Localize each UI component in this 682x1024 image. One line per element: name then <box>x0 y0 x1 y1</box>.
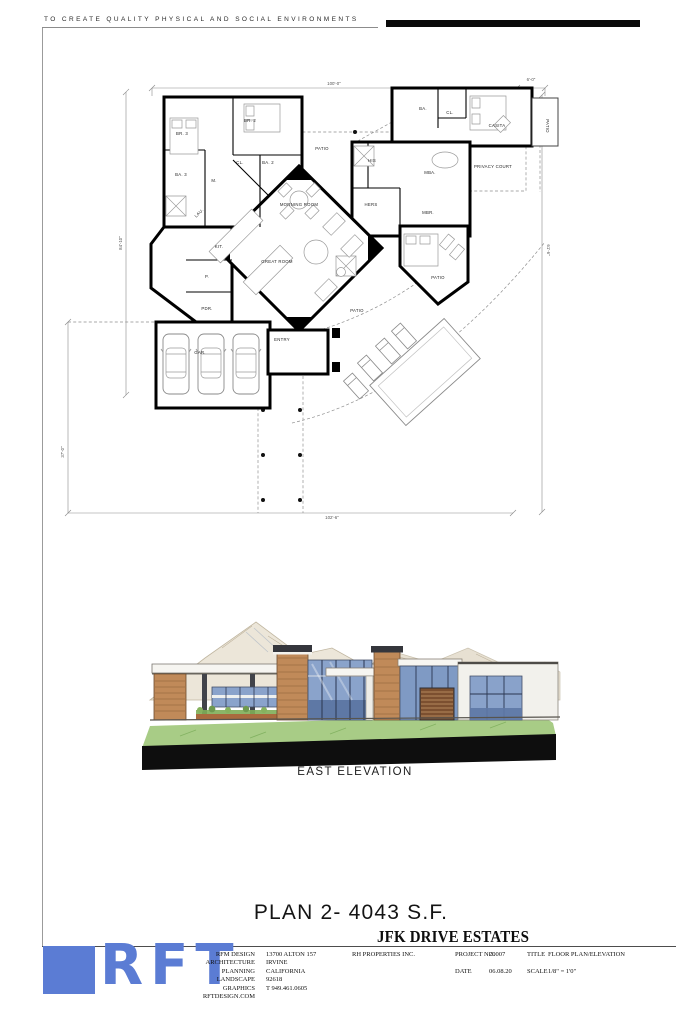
room-label-casita-ba: BA. <box>419 106 427 111</box>
project-no-value: 20007 <box>489 951 505 959</box>
room-label-morning-room: MORNING ROOM <box>280 202 318 207</box>
title-label: TITLE <box>527 951 545 959</box>
dim-bottom: 102'-6" <box>325 515 339 520</box>
room-label-entry: ENTRY <box>274 337 290 342</box>
title-value: FLOOR PLAN/ELEVATION <box>548 951 625 959</box>
room-label-m: M. <box>211 178 216 183</box>
room-label-mbr: MBR. <box>422 210 434 215</box>
dim-left-lower: 37'-0" <box>60 446 65 458</box>
east-elevation-rendering <box>142 622 560 770</box>
room-label-br3: BR. 3 <box>176 131 188 136</box>
firm-line: RFM DESIGN <box>158 951 255 959</box>
date-label: DATE <box>455 968 472 976</box>
floor-plan-and-elevation-drawing: 100'-0" 6'-0" 84'-10" 37'-0" 102'-6" 61'… <box>0 0 682 1024</box>
dim-top-right: 6'-0" <box>527 77 536 82</box>
firm-line: ARCHITECTURE <box>158 959 255 967</box>
firm-line: LANDSCAPE <box>158 976 255 984</box>
address-line: 13700 ALTON 157 <box>266 951 316 959</box>
firm-services-column: RFM DESIGN ARCHITECTURE PLANNING LANDSCA… <box>158 951 255 1001</box>
address-line: IRVINE <box>266 959 316 967</box>
date-value: 06.08.20 <box>489 968 512 976</box>
room-label-hers: HERS <box>365 202 378 207</box>
room-label-casita-cl: CL. <box>446 110 453 115</box>
room-label-gar: GAR. <box>194 350 206 355</box>
scale-label: SCALE <box>527 968 548 976</box>
room-label-ba2: BA. 2 <box>262 160 274 165</box>
firm-website: RFTDESIGN.COM <box>158 993 255 1001</box>
firm-address-column: 13700 ALTON 157 IRVINE CALIFORNIA 92618 … <box>266 951 316 993</box>
room-label-his: HIS <box>368 158 376 163</box>
project-name: JFK DRIVE ESTATES <box>377 927 529 947</box>
room-label-patio-top: PATIO <box>315 146 329 151</box>
firm-line: GRAPHICS <box>158 985 255 993</box>
room-label-privacy-court: PRIVACY COURT <box>474 164 512 169</box>
garage-cars <box>161 334 261 394</box>
scale-value: 1/8" = 1'0" <box>548 968 576 976</box>
room-label-patio-low: PATIO <box>350 308 364 313</box>
address-phone: T 949.461.0605 <box>266 985 316 993</box>
plan-title: PLAN 2- 4043 S.F. <box>0 901 682 925</box>
firm-line: PLANNING <box>158 968 255 976</box>
room-label-pdr: PDR. <box>201 306 212 311</box>
address-line: CALIFORNIA <box>266 968 316 976</box>
room-label-casita: CASITA <box>489 123 506 128</box>
room-label-br2: BR. 2 <box>244 118 256 123</box>
room-label-patio-mid: PATIO <box>431 275 445 280</box>
room-label-mba: MBA. <box>424 170 436 175</box>
dim-left: 84'-10" <box>118 236 123 250</box>
address-line: 92618 <box>266 976 316 984</box>
wood-tower <box>277 650 308 720</box>
room-label-p: P. <box>205 274 209 279</box>
pool <box>344 318 481 425</box>
room-label-cl: CL. <box>236 160 243 165</box>
dim-right: 61'-6" <box>546 244 551 256</box>
room-label-great-room: GREAT ROOM <box>261 259 293 264</box>
room-label-kit: KIT. <box>215 244 223 249</box>
drawing-sheet: TO CREATE QUALITY PHYSICAL AND SOCIAL EN… <box>0 0 682 1024</box>
room-label-casita-patio: PATIO <box>545 119 550 133</box>
logo-square <box>43 946 95 994</box>
client-name: RH PROPERTIES INC. <box>352 951 415 959</box>
dim-top: 100'-0" <box>327 81 341 86</box>
room-label-ba3: BA. 3 <box>175 172 187 177</box>
elevation-caption: EAST ELEVATION <box>255 766 455 778</box>
